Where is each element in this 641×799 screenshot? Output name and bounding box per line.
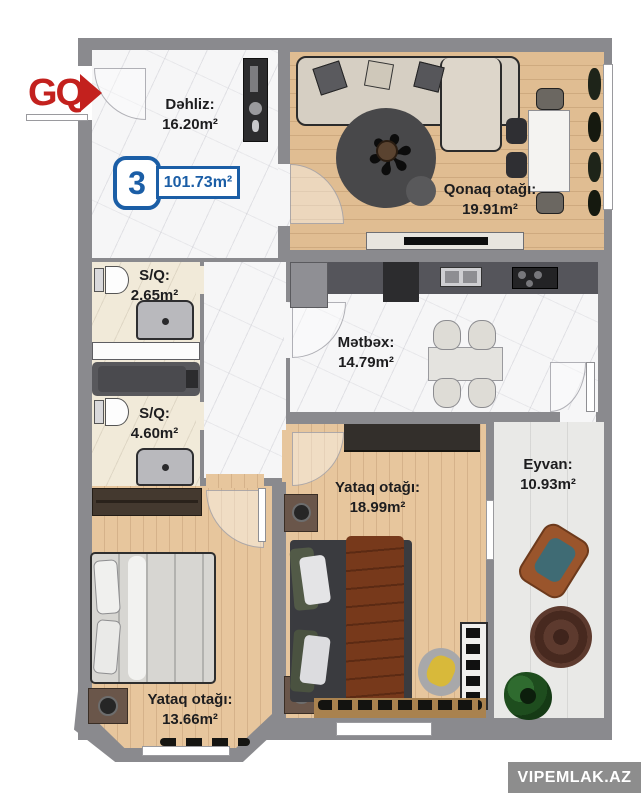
window-plant-2 xyxy=(588,112,601,142)
window-plant-3 xyxy=(588,152,601,182)
label-eyvan: Eyvan: 10.93m² xyxy=(478,455,618,494)
sofa-pillow-2 xyxy=(364,60,394,90)
wardrobe-yataq1-clothes xyxy=(318,700,482,710)
watermark-bar: VIPEMLAK.AZ xyxy=(508,762,641,793)
tv xyxy=(404,237,488,245)
door-gap-yataq1 xyxy=(282,430,290,482)
label-sq2: S/Q: 4.60m² xyxy=(102,404,207,443)
stove-burner-2 xyxy=(534,271,542,279)
dining-chair-2 xyxy=(506,152,527,178)
yataq2-area: 13.66m² xyxy=(115,710,265,730)
label-dehliz: Dəhliz: 16.20m² xyxy=(120,95,260,134)
yataq1-name: Yataq otağı: xyxy=(335,479,420,496)
entrance-shelf xyxy=(26,114,88,121)
label-qonaq: Qonaq otağı: 19.91m² xyxy=(420,180,560,219)
bed2-pillow-1 xyxy=(93,559,121,615)
door-gap-kitchen xyxy=(284,302,292,358)
door-gap-living xyxy=(278,164,290,226)
bathtub-faucet xyxy=(186,370,198,388)
kitchen-chair-1 xyxy=(433,320,461,350)
hall-console-item-1 xyxy=(250,66,258,92)
dining-chair-1 xyxy=(506,118,527,144)
eyvan-name: Eyvan: xyxy=(523,456,572,473)
dehliz-area: 16.20m² xyxy=(120,115,260,135)
bay-window xyxy=(142,746,230,756)
closet-yataq1 xyxy=(344,424,480,452)
bed2-pillow-2 xyxy=(93,619,122,675)
kitchen-fridge xyxy=(383,262,419,302)
shower1-drain xyxy=(162,318,169,325)
bedroom1-window xyxy=(336,722,432,736)
gq-logo: GQ xyxy=(28,74,83,112)
eyvan-area: 10.93m² xyxy=(478,475,618,495)
bedroom-shelf-items xyxy=(466,628,480,704)
sq2-name: S/Q: xyxy=(139,405,170,422)
bed1-blanket xyxy=(346,536,404,704)
label-sq1: S/Q: 2.65m² xyxy=(102,266,207,305)
window-plant-1 xyxy=(588,68,601,100)
kitchen-chair-4 xyxy=(468,378,496,408)
corridor xyxy=(204,262,286,478)
balcony-plant-center xyxy=(520,688,536,704)
label-yataq1: Yataq otağı: 18.99m² xyxy=(305,478,450,517)
sq1-area: 2.65m² xyxy=(102,286,207,306)
sofa-chaise xyxy=(440,58,502,152)
gq-arrow-icon xyxy=(80,74,102,112)
metbex-name: Mətbəx: xyxy=(338,334,395,351)
qonaq-area: 19.91m² xyxy=(420,200,560,220)
bathtub-inner xyxy=(98,366,186,392)
kitchen-cabinet xyxy=(290,262,328,308)
sq2-area: 4.60m² xyxy=(102,424,207,444)
floor-plan: ✻ xyxy=(0,0,641,799)
stove-burner-1 xyxy=(518,271,526,279)
metbex-area: 14.79m² xyxy=(296,353,436,373)
kitchen-sink-basin xyxy=(445,271,459,283)
yataq1-area: 18.99m² xyxy=(305,498,450,518)
door-leaf-balcony xyxy=(586,362,595,412)
living-window xyxy=(603,64,613,210)
sq1-name: S/Q: xyxy=(139,267,170,284)
door-gap-yataq2 xyxy=(206,474,264,488)
dining-chair-3 xyxy=(536,88,564,110)
shower2-drain xyxy=(162,464,169,471)
wardrobe-yataq2-shelf xyxy=(96,500,198,503)
bedroom2-floor-items xyxy=(160,738,250,746)
door-leaf-yataq2 xyxy=(258,488,266,542)
dehliz-name: Dəhliz: xyxy=(165,96,214,113)
qonaq-name: Qonaq otağı: xyxy=(444,181,537,198)
kitchen-sink-basin2 xyxy=(463,271,477,283)
kitchen-chair-2 xyxy=(468,320,496,350)
kitchen-table xyxy=(428,347,503,381)
unit-number-badge: 3 xyxy=(113,156,161,210)
rug-bowl xyxy=(376,140,398,162)
balcony-rug xyxy=(530,606,592,668)
window-plant-4 xyxy=(588,190,601,216)
bath-counter xyxy=(92,342,200,360)
balcony-side-window xyxy=(486,500,494,560)
bed2-sheet-fold xyxy=(128,556,146,680)
label-metbex: Mətbəx: 14.79m² xyxy=(296,333,436,372)
yataq2-name: Yataq otağı: xyxy=(147,691,232,708)
label-yataq2: Yataq otağı: 13.66m² xyxy=(115,690,265,729)
stove-burner-3 xyxy=(526,280,533,287)
unit-total-area: 101.73m² xyxy=(156,166,240,199)
kitchen-chair-3 xyxy=(433,378,461,408)
